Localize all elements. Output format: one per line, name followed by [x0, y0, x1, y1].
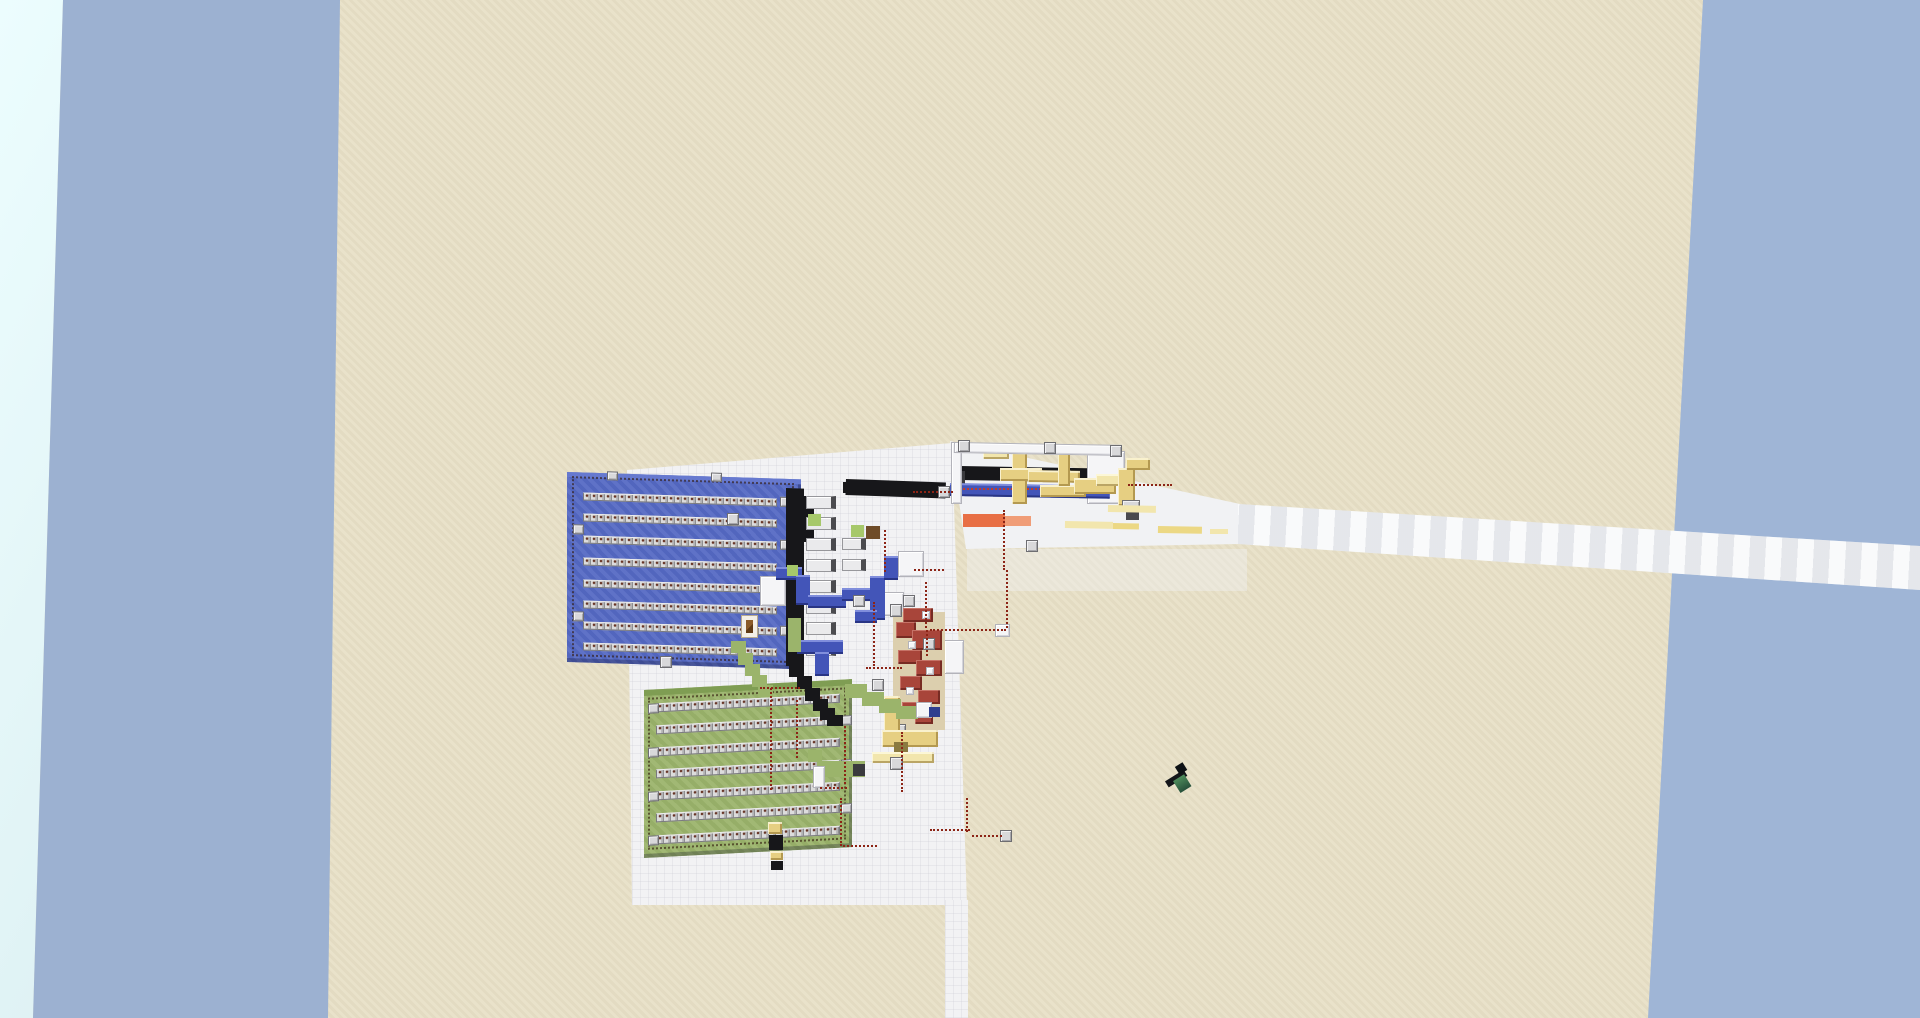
arm-end-tip	[853, 764, 865, 776]
redstone-wire	[820, 787, 847, 789]
dropper-cap	[923, 638, 935, 650]
dropper-cap	[607, 471, 618, 480]
gold-stand-top	[1126, 458, 1150, 470]
redstone-wire	[884, 530, 886, 572]
dropper-box	[760, 576, 786, 606]
redstone-wire	[966, 798, 968, 832]
beacon-black	[769, 835, 783, 850]
dropper-cap	[573, 524, 584, 534]
furnace-unit	[806, 538, 836, 551]
white-dot	[906, 687, 914, 695]
black-stair-step	[827, 715, 843, 726]
item-frame	[741, 615, 758, 638]
dropper-cap	[573, 611, 584, 621]
minecraft-world-view[interactable]	[0, 0, 1920, 1018]
dropper-cap	[660, 656, 672, 668]
white-dot	[926, 667, 934, 675]
blue-pipe	[884, 556, 898, 580]
redstone-wire	[843, 845, 877, 847]
green-strip	[788, 618, 801, 652]
gold-sliver	[1108, 505, 1156, 513]
yellow-strip	[1065, 521, 1113, 529]
furnace-unit	[806, 559, 836, 572]
gold-pipe	[882, 730, 938, 747]
blue-pipe	[815, 652, 829, 676]
dropper-cap	[648, 835, 659, 846]
yellow-strip	[1210, 529, 1228, 534]
furnace-unit	[806, 580, 836, 593]
gold-pipe	[1028, 470, 1080, 483]
redstone-wire	[840, 798, 842, 846]
redstone-wire	[866, 667, 902, 669]
gold-pipe	[1058, 452, 1070, 486]
white-platform-south-strip	[945, 900, 968, 1018]
beacon-black	[771, 861, 783, 870]
dropper-cap	[1044, 442, 1056, 454]
dropper-box	[898, 551, 924, 577]
dropper-cap	[853, 595, 865, 607]
redstone-wire	[930, 629, 1006, 631]
arm-end-tip	[929, 707, 940, 717]
black-beam	[845, 479, 945, 498]
dropper-cap	[727, 513, 739, 525]
redstone-wire	[926, 630, 928, 656]
dropper-cap	[872, 679, 884, 691]
redstone-wire	[925, 582, 927, 628]
redstone-wire	[770, 688, 772, 790]
gold-pipe	[872, 752, 934, 763]
redstone-wire	[873, 602, 875, 666]
dropper-cap	[648, 703, 659, 714]
blue-pipe	[808, 595, 846, 608]
dropper-cap	[958, 440, 970, 452]
furnace-unit	[806, 496, 836, 509]
redstone-wire	[796, 700, 798, 758]
dropper-cap	[648, 747, 659, 758]
lime-block	[851, 525, 864, 537]
dropper-box	[944, 640, 964, 674]
redstone-wire	[914, 569, 944, 571]
redstone-wire	[913, 491, 953, 493]
green-arm-step	[896, 706, 918, 719]
furnace-unit	[806, 622, 836, 635]
redstone-wire	[1128, 484, 1172, 486]
green-stair-step	[731, 641, 746, 653]
beacon-gold	[768, 822, 782, 834]
yellow-strip	[1113, 523, 1139, 529]
redstone-wire	[1003, 510, 1005, 570]
dropper-cap	[841, 803, 852, 814]
dropper-cap	[711, 473, 722, 482]
dropper-cap	[1110, 445, 1122, 457]
redstone-wire	[901, 732, 903, 792]
orange-strip	[963, 514, 1005, 527]
black-beam-joint	[843, 482, 857, 493]
redstone-wire	[760, 687, 800, 689]
furnace-unit	[842, 559, 866, 571]
lime-block	[787, 565, 798, 576]
sand-haze	[967, 549, 1247, 591]
dropper-cap	[890, 604, 902, 617]
white-dot	[908, 641, 916, 649]
redstone-wire	[1006, 570, 1008, 628]
redstone-wire	[844, 726, 846, 784]
barrel-block	[866, 526, 880, 539]
redstone-wire	[930, 829, 970, 831]
redstone-wire	[972, 835, 1002, 837]
lime-block	[808, 514, 821, 526]
dropper-cap	[648, 791, 659, 802]
orange-strip-light	[1005, 516, 1031, 526]
yellow-strip	[1158, 526, 1202, 534]
dropper-cap	[903, 595, 915, 607]
arm-side-box	[813, 766, 825, 788]
blue-platform	[567, 472, 801, 669]
dropper-cap	[1026, 540, 1038, 552]
beacon-gold	[770, 851, 783, 860]
furnace-unit	[842, 538, 866, 550]
